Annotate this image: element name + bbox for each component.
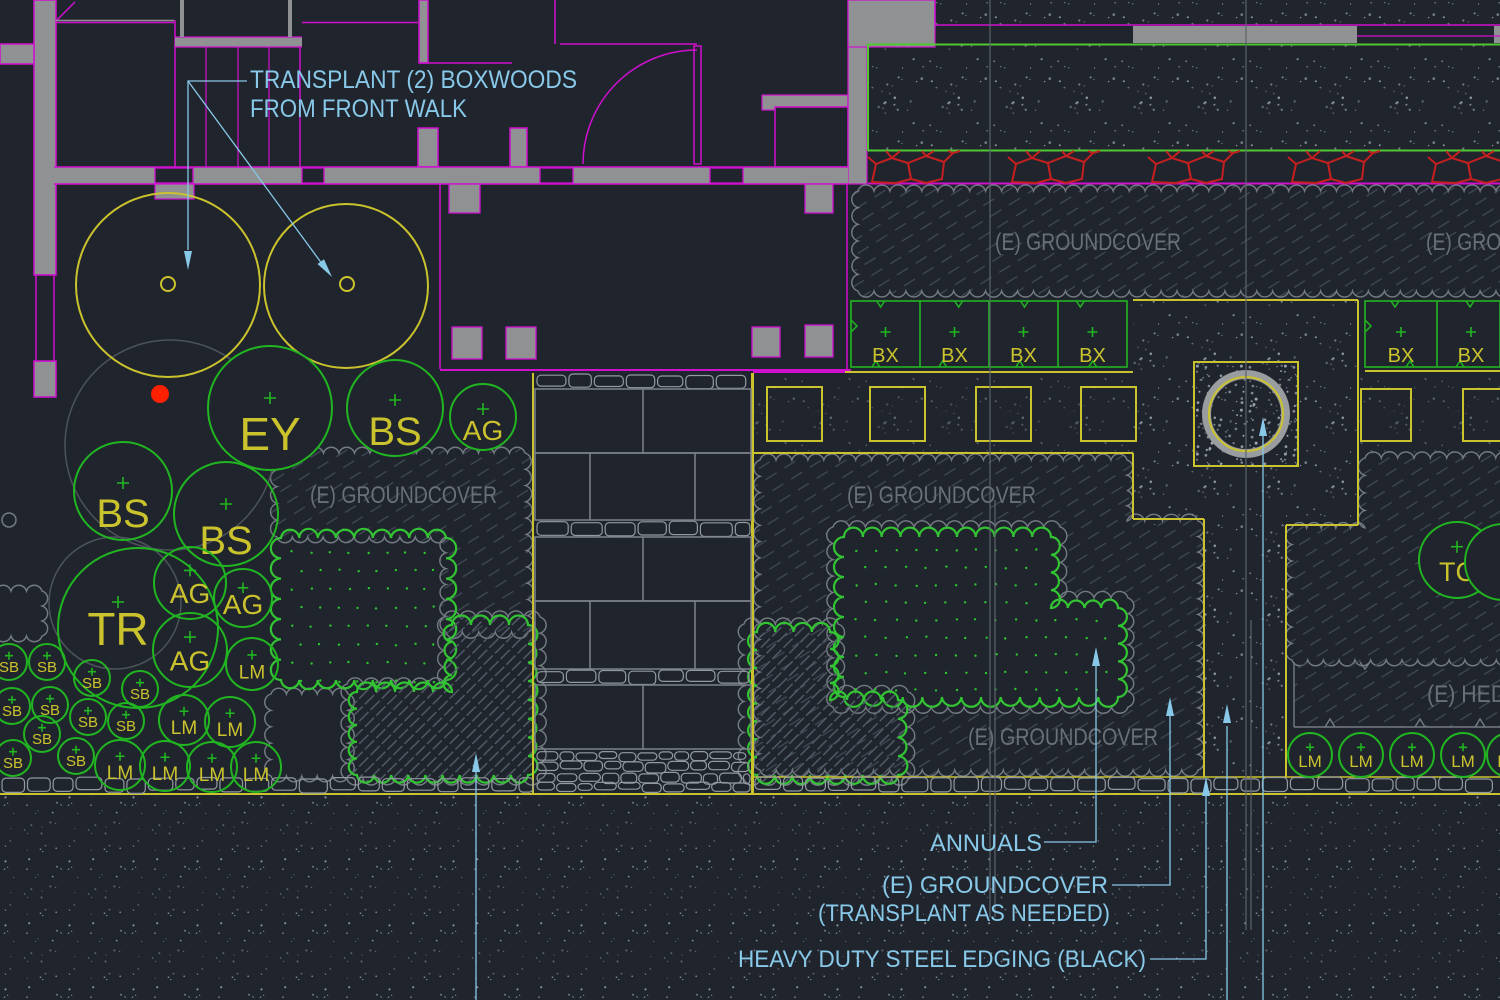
svg-text:AG: AG (463, 415, 503, 446)
svg-text:LM: LM (217, 720, 243, 741)
svg-text:SB: SB (32, 731, 52, 748)
svg-text:BX: BX (1458, 345, 1485, 367)
svg-text:(E) GROUNDCOVER: (E) GROUNDCOVER (1426, 229, 1500, 256)
svg-text:SB: SB (66, 753, 86, 770)
svg-text:(E) GROUNDCOVER: (E) GROUNDCOVER (310, 482, 497, 509)
svg-text:(E) GROUNDCOVER: (E) GROUNDCOVER (847, 482, 1036, 509)
svg-text:LM: LM (107, 763, 133, 784)
svg-text:(E) GROUNDCOVER: (E) GROUNDCOVER (968, 724, 1158, 751)
svg-text:BX: BX (872, 345, 899, 367)
svg-text:SB: SB (116, 718, 136, 735)
svg-text:LM: LM (199, 765, 225, 786)
svg-text:LM: LM (243, 765, 269, 786)
svg-text:SB: SB (130, 686, 150, 703)
svg-text:SB: SB (0, 659, 19, 676)
svg-text:BS: BS (96, 492, 149, 536)
svg-text:LM: LM (239, 662, 265, 683)
svg-text:BX: BX (941, 345, 968, 367)
svg-text:HEAVY DUTY STEEL EDGING (BLACK: HEAVY DUTY STEEL EDGING (BLACK) (738, 946, 1146, 973)
svg-text:TR: TR (87, 603, 148, 655)
svg-text:(E) GROUNDCOVER: (E) GROUNDCOVER (995, 229, 1181, 256)
svg-text:SB: SB (78, 714, 98, 731)
svg-text:(TRANSPLANT AS NEEDED): (TRANSPLANT AS NEEDED) (818, 900, 1110, 927)
svg-text:ANNUALS: ANNUALS (930, 830, 1042, 857)
svg-text:BX: BX (1388, 345, 1415, 367)
svg-text:TRANSPLANT (2) BOXWOODS: TRANSPLANT (2) BOXWOODS (250, 66, 577, 94)
svg-text:AG: AG (170, 645, 210, 676)
svg-text:SB: SB (37, 659, 57, 676)
svg-text:EY: EY (239, 408, 300, 460)
svg-text:BS: BS (368, 410, 421, 454)
svg-text:SB: SB (2, 703, 22, 720)
svg-text:(E) GROUNDCOVER: (E) GROUNDCOVER (882, 872, 1108, 899)
svg-text:LM: LM (1349, 752, 1373, 771)
svg-text:BS: BS (199, 519, 252, 563)
svg-text:(E) HEDGE: (E) HEDGE (1427, 681, 1500, 708)
svg-text:AG: AG (170, 578, 210, 609)
svg-text:LM: LM (171, 718, 197, 739)
svg-text:SB: SB (82, 675, 102, 692)
svg-text:LM: LM (1298, 752, 1322, 771)
svg-text:LM: LM (1451, 752, 1475, 771)
svg-text:FROM FRONT WALK: FROM FRONT WALK (250, 95, 467, 123)
svg-text:LM: LM (152, 764, 178, 785)
svg-text:BX: BX (1010, 345, 1037, 367)
svg-text:LM: LM (1400, 752, 1424, 771)
svg-text:SB: SB (3, 755, 23, 772)
svg-text:BX: BX (1079, 345, 1106, 367)
svg-text:AG: AG (223, 589, 263, 620)
